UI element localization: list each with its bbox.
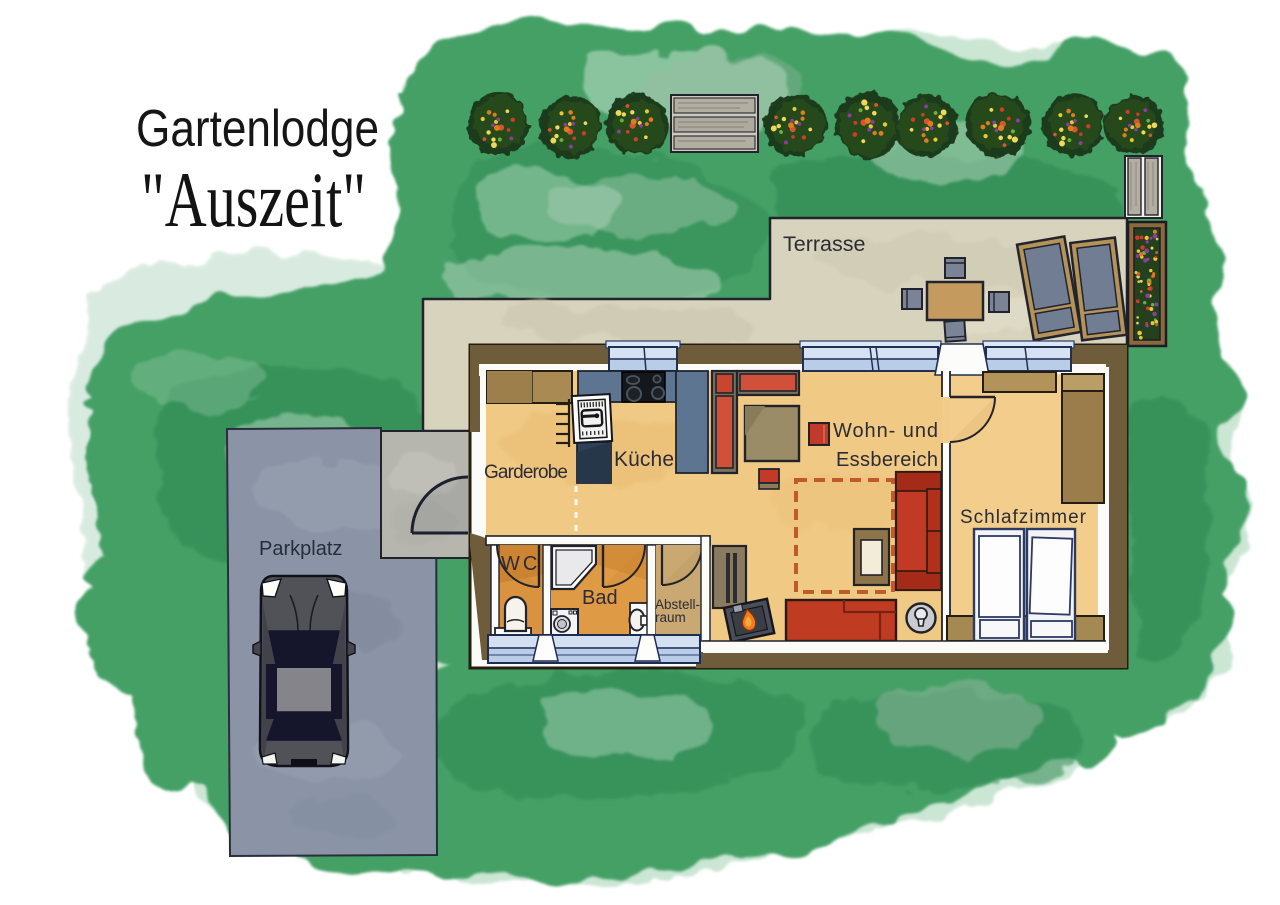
svg-text:Garderobe: Garderobe xyxy=(484,462,568,483)
svg-text:Schlafzimmer: Schlafzimmer xyxy=(960,507,1087,528)
svg-text:Terrasse: Terrasse xyxy=(783,232,865,256)
svg-text:Parkplatz: Parkplatz xyxy=(259,538,342,560)
svg-text:WC: WC xyxy=(501,553,540,575)
svg-text:Küche: Küche xyxy=(614,448,674,471)
svg-text:Bad: Bad xyxy=(582,587,618,609)
svg-text:"Auszeit": "Auszeit" xyxy=(141,156,366,243)
svg-text:Wohn- und: Wohn- und xyxy=(833,420,938,442)
svg-text:Essbereich: Essbereich xyxy=(836,449,938,471)
svg-text:raum: raum xyxy=(655,610,686,625)
svg-text:Gartenlodge: Gartenlodge xyxy=(136,100,379,158)
